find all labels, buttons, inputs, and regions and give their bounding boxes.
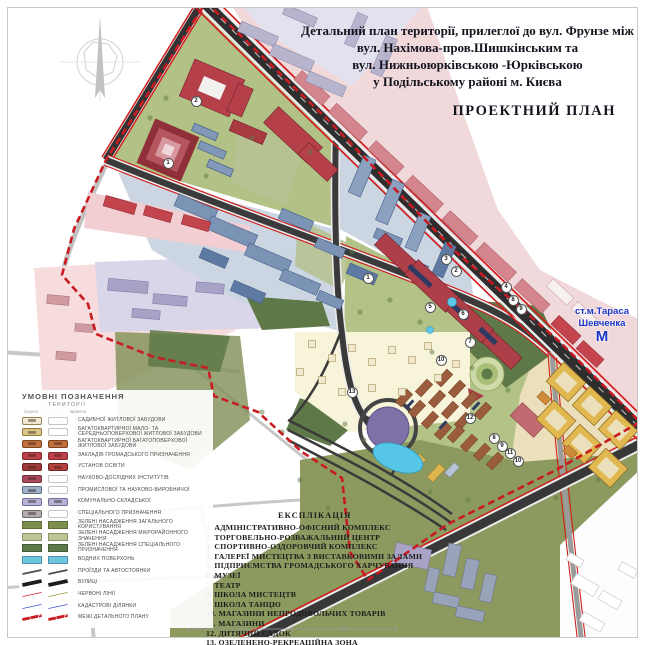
legend-label: ВОДНИХ ПОВЕРХОНЬ xyxy=(74,557,135,562)
legend-swatch-projected xyxy=(48,544,68,552)
legend-swatch-projected xyxy=(48,475,68,483)
map-number-marker: 4 xyxy=(501,282,512,293)
map-number-marker: 3 xyxy=(441,254,452,265)
metro-name: ст.м.Тараса xyxy=(556,306,645,318)
legend-row: НАУКОВО-ДОСЛІДНИХ ІНСТИТУТІВ xyxy=(22,473,210,485)
map-number-marker: 2 xyxy=(191,96,202,107)
legend-row: МЕЖІ ДЕТАЛЬНОГО ПЛАНУ xyxy=(22,612,210,624)
legend-swatch-existing xyxy=(22,614,42,621)
legend-swatch-existing xyxy=(22,463,42,471)
legend-swatch-projected xyxy=(48,452,68,460)
explication-item: 8. ШКОЛА МИСТЕЦТВ xyxy=(206,590,492,600)
legend-swatch-projected xyxy=(48,498,68,506)
legend-label: СПЕЦІАЛЬНОГО ПРИЗНАЧЕННЯ xyxy=(74,511,161,516)
legend-swatch-existing xyxy=(22,475,42,483)
compass-rose xyxy=(60,16,140,102)
legend-swatch-existing xyxy=(22,498,42,506)
legend-row: БАГАТОКВАРТИРНОЇ МАЛО- ТА СЕРЕДНЬОПОВЕРХ… xyxy=(22,427,210,439)
legend-label: САДИБНОЇ ЖИТЛОВОЇ ЗАБУДОВИ xyxy=(74,418,166,423)
legend-label: КОМУНАЛЬНО-СКЛАДСЬКОЇ xyxy=(74,499,151,504)
legend-label: МЕЖІ ДЕТАЛЬНОГО ПЛАНУ xyxy=(74,615,149,620)
legend-swatch-projected xyxy=(48,521,68,529)
map-number-marker: 12 xyxy=(465,413,476,424)
legend-label: ЗЕЛЕНІ НАСАДЖЕННЯ ЗАГАЛЬНОГО КОРИСТУВАНН… xyxy=(74,520,210,531)
legend-swatch-existing xyxy=(22,579,42,587)
legend-row: ПРОМИСЛОВОЇ ТА НАУКОВО-ВИРОБНИЧОЇ xyxy=(22,485,210,497)
legend-swatch-projected xyxy=(48,614,68,621)
explication-item: 6. МУЗЕЇ xyxy=(206,571,492,581)
legend-swatch-existing xyxy=(22,521,42,529)
map-number-marker: 10 xyxy=(436,355,447,366)
legend-swatch-projected xyxy=(48,604,68,609)
legend-row: КАДАСТРОВІ ДІЛЯНКИ xyxy=(22,601,210,613)
legend-row: ЗАКЛАДІВ ГРОМАДСЬКОГО ПРИЗНАЧЕННЯ xyxy=(22,450,210,462)
legend-panel: УМОВНІ ПОЗНАЧЕННЯ ТЕРИТОРІЇ існуючі прое… xyxy=(19,390,213,628)
explication-item: 4. ГАЛЕРЕЇ МИСТЕЦТВА З ВИСТАВКОВИМИ ЗАЛА… xyxy=(206,552,492,562)
legend-subtitle: ТЕРИТОРІЇ xyxy=(22,402,112,408)
explication-item: 7. ТЕАТР xyxy=(206,581,492,591)
explication-item: 10. МАГАЗИНИ НЕПРОДОВОЛЬЧИХ ТОВАРІВ xyxy=(206,609,492,619)
legend-label: БАГАТОКВАРТИРНОЇ БАГАТОПОВЕРХОВОЇ ЖИТЛОВ… xyxy=(74,439,210,450)
legend-swatch-existing xyxy=(22,533,42,541)
legend-swatch-existing xyxy=(22,417,42,425)
legend-swatch-projected xyxy=(48,579,68,587)
legend-row: УСТАНОВ ОСВІТИ xyxy=(22,461,210,473)
legend-swatch-existing xyxy=(22,604,42,609)
explication-title: ЕКСПЛІКАЦІЯ xyxy=(278,510,492,520)
detail-plan-sheet: 12132456897101289111013 Детальний план т… xyxy=(0,0,645,645)
metro-m-icon: М xyxy=(556,331,645,343)
explication-item: 2. ТОРГОВЕЛЬНО-РОЗВАЖАЛЬНИЙ ЦЕНТР xyxy=(206,533,492,543)
legend-swatch-existing xyxy=(22,510,42,518)
legend-swatch-existing xyxy=(22,452,42,460)
explication-item: 1. АДМІНІСТРАТИВНО-ОФІСНИЙ КОМПЛЕКС xyxy=(206,523,492,533)
explication-panel: ЕКСПЛІКАЦІЯ 1. АДМІНІСТРАТИВНО-ОФІСНИЙ К… xyxy=(206,510,492,645)
explication-item: 11. МАГАЗИНИ xyxy=(206,619,492,629)
legend-swatch-projected xyxy=(48,510,68,518)
map-number-marker: 5 xyxy=(425,302,436,313)
legend-swatch-existing xyxy=(22,428,42,436)
explication-item: 9. ШКОЛА ТАНЦЮ xyxy=(206,600,492,610)
metro-station-label: ст.м.Тараса Шевченка М xyxy=(556,306,645,343)
legend-row: ПРОЇЗДИ ТА АВТОСТОЯНКИ xyxy=(22,566,210,578)
legend-column-headers: існуючі проектні xyxy=(24,409,86,414)
map-number-marker: 13 xyxy=(347,387,358,398)
legend-swatch-existing xyxy=(22,568,42,574)
legend-row: ЗЕЛЕНІ НАСАДЖЕННЯ СПЕЦІАЛЬНОГО ПРИЗНАЧЕН… xyxy=(22,543,210,555)
legend-row: КОМУНАЛЬНО-СКЛАДСЬКОЇ xyxy=(22,496,210,508)
legend-label: УСТАНОВ ОСВІТИ xyxy=(74,464,125,469)
legend-label: ВУЛИЦІ xyxy=(74,580,97,585)
legend-swatch-existing xyxy=(22,556,42,564)
legend-swatch-projected xyxy=(48,428,68,436)
legend-row: БАГАТОКВАРТИРНОЇ БАГАТОПОВЕРХОВОЇ ЖИТЛОВ… xyxy=(22,438,210,450)
title-line: Детальний план території, прилеглої до в… xyxy=(295,22,640,39)
col-existing-label: існуючі xyxy=(24,409,38,414)
title-line: вул. Нижньоюрківською -Юрківською xyxy=(295,56,640,73)
legend-row: ВУЛИЦІ xyxy=(22,577,210,589)
map-number-marker: 2 xyxy=(451,266,462,277)
legend-row: САДИБНОЇ ЖИТЛОВОЇ ЗАБУДОВИ xyxy=(22,415,210,427)
map-number-marker: 9 xyxy=(516,304,527,315)
legend-title: УМОВНІ ПОЗНАЧЕННЯ xyxy=(22,392,210,401)
map-number-marker: 10 xyxy=(513,456,524,467)
legend-swatch-projected xyxy=(48,533,68,541)
map-number-marker: 1 xyxy=(363,273,374,284)
legend-swatch-existing xyxy=(22,440,42,448)
explication-item: 13. ОЗЕЛЕНЕНО-РЕКРЕАЦІЙНА ЗОНА xyxy=(206,638,492,645)
legend-label: БАГАТОКВАРТИРНОЇ МАЛО- ТА СЕРЕДНЬОПОВЕРХ… xyxy=(74,427,210,438)
map-number-marker: 8 xyxy=(508,295,519,306)
legend-swatch-projected xyxy=(48,592,68,597)
legend-swatch-projected xyxy=(48,417,68,425)
legend-label: ЗЕЛЕНІ НАСАДЖЕННЯ СПЕЦІАЛЬНОГО ПРИЗНАЧЕН… xyxy=(74,543,210,554)
legend-row: ВОДНИХ ПОВЕРХОНЬ xyxy=(22,554,210,566)
legend-swatch-projected xyxy=(48,440,68,448)
legend-row: ЧЕРВОНІ ЛІНІЇ xyxy=(22,589,210,601)
legend-rows: САДИБНОЇ ЖИТЛОВОЇ ЗАБУДОВИБАГАТОКВАРТИРН… xyxy=(22,415,210,624)
legend-swatch-projected xyxy=(48,556,68,564)
explication-item: 12. ДИТЯЧИЙ САДОК xyxy=(206,629,492,639)
legend-swatch-projected xyxy=(48,568,68,574)
map-number-marker: 7 xyxy=(465,337,476,348)
legend-row: ЗЕЛЕНІ НАСАДЖЕННЯ МІКРОРАЙОННОГО ЗНАЧЕНН… xyxy=(22,531,210,543)
legend-label: ЗЕЛЕНІ НАСАДЖЕННЯ МІКРОРАЙОННОГО ЗНАЧЕНН… xyxy=(74,531,210,542)
legend-swatch-projected xyxy=(48,486,68,494)
legend-row: СПЕЦІАЛЬНОГО ПРИЗНАЧЕННЯ xyxy=(22,508,210,520)
legend-swatch-existing xyxy=(22,544,42,552)
legend-label: ПРОМИСЛОВОЇ ТА НАУКОВО-ВИРОБНИЧОЇ xyxy=(74,488,190,493)
map-number-marker: 1 xyxy=(163,158,174,169)
col-projected-label: проектні xyxy=(70,409,86,414)
legend-label: ЧЕРВОНІ ЛІНІЇ xyxy=(74,592,115,597)
explication-item: 3. СПОРТИВНО-ОЗДОРОВЧИЙ КОМПЛЕКС xyxy=(206,542,492,552)
explication-items: 1. АДМІНІСТРАТИВНО-ОФІСНИЙ КОМПЛЕКС2. ТО… xyxy=(206,523,492,645)
legend-swatch-projected xyxy=(48,463,68,471)
plan-type-label: ПРОЕКТНИЙ ПЛАН xyxy=(295,103,640,120)
legend-label: ПРОЇЗДИ ТА АВТОСТОЯНКИ xyxy=(74,569,150,574)
map-number-marker: 6 xyxy=(458,309,469,320)
legend-label: ЗАКЛАДІВ ГРОМАДСЬКОГО ПРИЗНАЧЕННЯ xyxy=(74,453,190,458)
legend-label: НАУКОВО-ДОСЛІДНИХ ІНСТИТУТІВ xyxy=(74,476,169,481)
title-block: Детальний план території, прилеглої до в… xyxy=(295,22,640,120)
legend-swatch-existing xyxy=(22,592,42,597)
title-line: у Подільському районі м. Києва xyxy=(295,73,640,90)
legend-label: КАДАСТРОВІ ДІЛЯНКИ xyxy=(74,604,136,609)
legend-swatch-existing xyxy=(22,486,42,494)
explication-item: 5. ПІДПРИЄМСТВА ГРОМАДСЬКОГО ХАРЧУВАННЯ xyxy=(206,561,492,571)
title-line: вул. Нахімова-пров.Шишкінським та xyxy=(295,39,640,56)
